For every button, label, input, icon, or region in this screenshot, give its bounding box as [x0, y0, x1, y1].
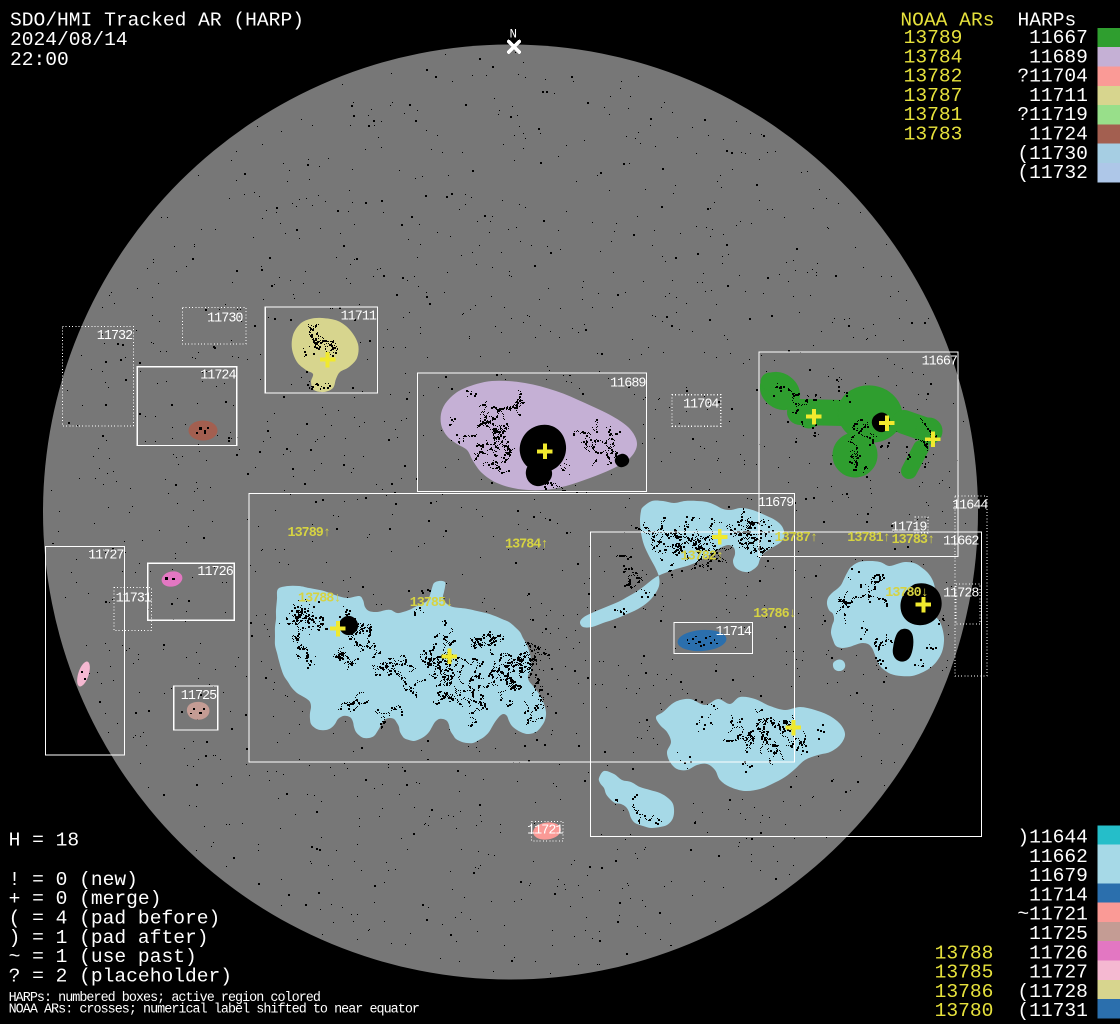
- svg-text:11728: 11728: [943, 587, 979, 602]
- svg-text:2024/08/14: 2024/08/14: [10, 29, 128, 51]
- svg-text:22:00: 22:00: [10, 49, 69, 71]
- svg-text:11725: 11725: [181, 689, 217, 704]
- svg-text:11711: 11711: [341, 310, 377, 325]
- svg-text:(11732: (11732: [1017, 162, 1088, 184]
- svg-text:11730: 11730: [207, 312, 243, 327]
- svg-text:13783↑: 13783↑: [892, 533, 934, 548]
- svg-text:13787↑: 13787↑: [775, 531, 817, 546]
- svg-text:11721: 11721: [527, 824, 563, 839]
- svg-text:13781↑: 13781↑: [847, 531, 889, 546]
- svg-text:13786↓: 13786↓: [753, 607, 795, 622]
- svg-text:NOAA ARs: crosses; numerical l: NOAA ARs: crosses; numerical label shift…: [9, 1002, 419, 1017]
- svg-text:11679: 11679: [758, 496, 794, 511]
- svg-text:13780: 13780: [935, 1000, 994, 1022]
- svg-text:11724: 11724: [200, 369, 236, 384]
- svg-text:SDO/HMI Tracked AR (HARP): SDO/HMI Tracked AR (HARP): [10, 10, 304, 32]
- svg-text:13785↓: 13785↓: [410, 596, 452, 611]
- svg-text:13788↓: 13788↓: [298, 592, 340, 607]
- svg-text:(11731: (11731: [1017, 1000, 1088, 1022]
- svg-text:13780↓: 13780↓: [885, 586, 927, 601]
- svg-text:11689: 11689: [610, 377, 646, 392]
- svg-text:13789↑: 13789↑: [288, 526, 330, 541]
- svg-text:11731: 11731: [116, 592, 152, 607]
- svg-text:11667: 11667: [922, 355, 957, 370]
- svg-text:? = 2 (placeholder): ? = 2 (placeholder): [9, 965, 232, 987]
- svg-text:11726: 11726: [197, 565, 233, 580]
- svg-text:11662: 11662: [943, 535, 979, 550]
- svg-text:11644: 11644: [952, 499, 988, 514]
- svg-text:11732: 11732: [97, 329, 133, 344]
- svg-text:13783: 13783: [904, 124, 963, 146]
- svg-text:N: N: [510, 28, 518, 42]
- svg-text:13782↑: 13782↑: [681, 550, 723, 565]
- svg-text:11714: 11714: [716, 625, 752, 640]
- svg-text:13784↑: 13784↑: [505, 538, 547, 553]
- svg-text:H = 18: H = 18: [9, 830, 80, 852]
- svg-text:11727: 11727: [88, 549, 123, 564]
- svg-text:11704: 11704: [683, 398, 719, 413]
